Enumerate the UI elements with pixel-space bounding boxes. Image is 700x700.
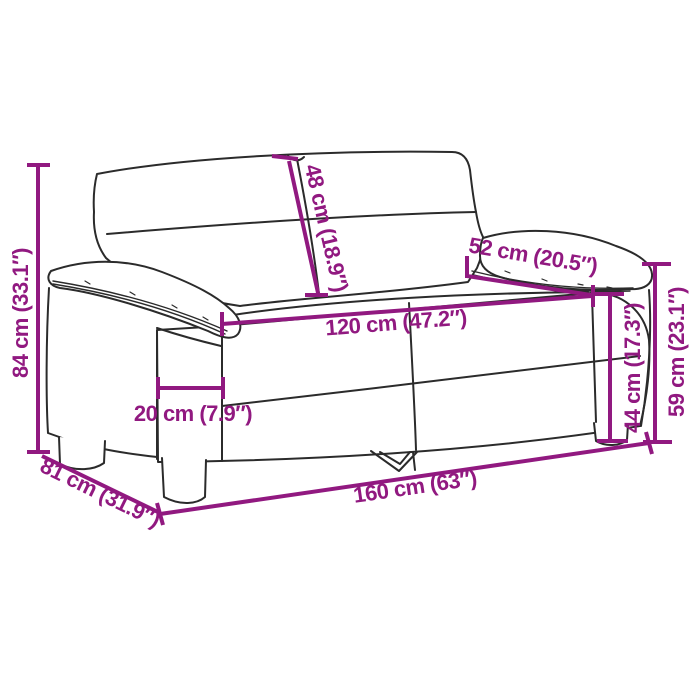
dim-label-total-height: 84 cm (33.1″) [8,248,34,378]
sofa-left-side [47,288,157,457]
dim-label-armrest-width: 20 cm (7.9″) [134,401,252,427]
dim-label-seat-height: 44 cm (17.3″) [620,303,646,433]
dimension-diagram: 84 cm (33.1″) 48 cm (18.9″) 52 cm (20.5″… [0,0,700,700]
sofa-line-drawing [0,0,700,700]
sofa-foot-front-left [162,458,206,503]
dim-label-armrest-height: 59 cm (23.1″) [664,287,690,417]
